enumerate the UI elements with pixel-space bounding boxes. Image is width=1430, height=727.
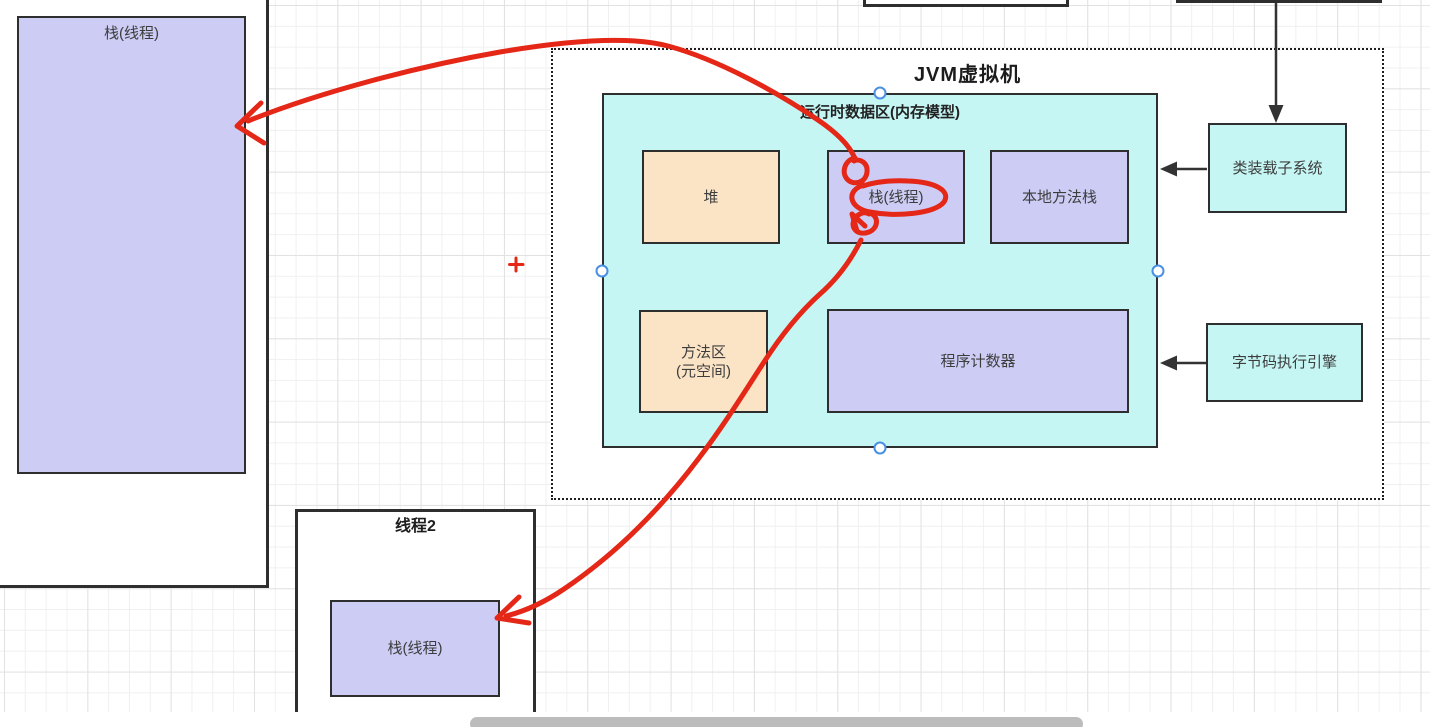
native-method-stack-label: 本地方法栈 [992,152,1127,242]
jvm-title: JVM虚拟机 [553,58,1382,87]
program-counter-label: 程序计数器 [829,311,1127,411]
thread1-container[interactable]: 栈(线程) [0,0,269,588]
heap-label: 堆 [644,152,778,242]
bytecode-exec-engine-box[interactable]: 字节码执行引擎 [1206,323,1363,402]
red-plus-mark [510,258,524,271]
bytecode-exec-engine-label: 字节码执行引擎 [1208,325,1361,400]
stack-thread-label: 栈(线程) [829,152,963,242]
diagram-canvas[interactable]: 栈(线程) JVM虚拟机 运行时数据区(内存模型) 堆 栈(线程) 本地方法栈 … [0,0,1430,727]
thread2-stack-label: 栈(线程) [332,602,498,695]
class-loader-subsystem-label: 类装载子系统 [1210,125,1345,211]
thread2-stack-box[interactable]: 栈(线程) [330,600,500,697]
thread2-title: 线程2 [298,517,533,536]
class-loader-subsystem-box[interactable]: 类装载子系统 [1208,123,1347,213]
horizontal-scrollbar-thumb[interactable] [470,717,1083,727]
method-area-label-line2: (元空间) [641,362,766,381]
top-partial-box-left[interactable] [863,0,1069,7]
thread2-container[interactable]: 线程2 栈(线程) [295,509,536,727]
runtime-data-area-title: 运行时数据区(内存模型) [604,101,1156,122]
stack-thread-box[interactable]: 栈(线程) [827,150,965,244]
method-area-label-line1: 方法区 [641,343,766,362]
program-counter-box[interactable]: 程序计数器 [827,309,1129,413]
thread1-stack-label: 栈(线程) [19,24,244,43]
thread1-stack-box[interactable]: 栈(线程) [17,16,246,474]
heap-box[interactable]: 堆 [642,150,780,244]
native-method-stack-box[interactable]: 本地方法栈 [990,150,1129,244]
method-area-box[interactable]: 方法区 (元空间) [639,310,768,413]
top-partial-box-right[interactable] [1176,0,1382,3]
